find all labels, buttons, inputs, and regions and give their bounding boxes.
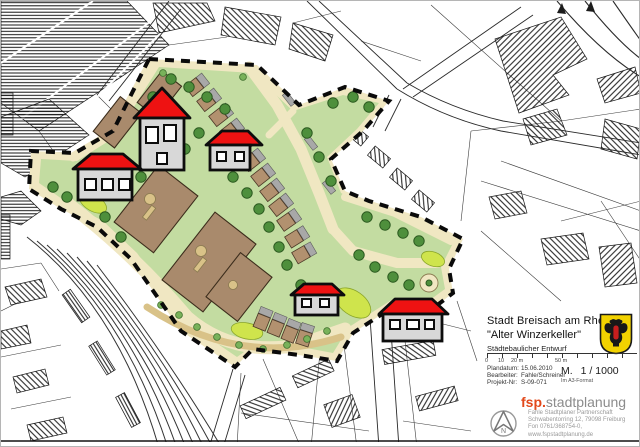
meta-value: 15.06.2010 xyxy=(521,365,553,372)
meta-value: S-09-071 xyxy=(521,379,547,386)
address-line: Fon 0761/368754-0, www.fspstadtplanung.d… xyxy=(528,424,639,438)
meta-label: Projekt-Nr: xyxy=(487,379,521,386)
plan-sheet: Stadt Breisach am Rhein "Alter Winzerkel… xyxy=(0,0,640,447)
plan-meta: Plandatum: 15.06.2010 Bearbeiter: Fahle/… xyxy=(487,365,640,387)
address-line: Fahle Stadtplaner Partnerschaft xyxy=(528,410,639,417)
meta-value: Fahle/Schreiner xyxy=(521,372,565,379)
office-address: Fahle Stadtplaner Partnerschaft Schwaben… xyxy=(528,410,639,439)
meta-label: Plandatum: xyxy=(487,365,521,372)
logo-prefix: fsp. xyxy=(521,394,546,410)
scale-value: 1 / 1000 xyxy=(581,365,619,377)
logo-name: stadtplanung xyxy=(546,394,626,410)
house-marker-4 xyxy=(291,284,344,315)
scale-prefix: M. xyxy=(561,365,573,377)
house-marker-5 xyxy=(379,299,448,341)
house-marker-3 xyxy=(73,154,141,200)
scale-statement: M. 1 / 1000 Im A3-Format xyxy=(561,365,619,384)
scale-tick-label: 10 xyxy=(498,358,504,364)
scale-tick-label: 20 m xyxy=(511,358,523,364)
fsp-logo: fsp.stadtplanung xyxy=(521,394,626,410)
meta-label: Bearbeiter: xyxy=(487,372,521,379)
north-arrow-icon: N xyxy=(487,407,520,445)
format-note: Im A3-Format xyxy=(561,378,619,384)
north-label: N xyxy=(501,428,506,435)
scale-tick-label: 50 m xyxy=(555,358,567,364)
address-line: Schwabentorring 12, 79098 Freiburg xyxy=(528,417,639,424)
scale-tick-label: 0 xyxy=(485,358,488,364)
